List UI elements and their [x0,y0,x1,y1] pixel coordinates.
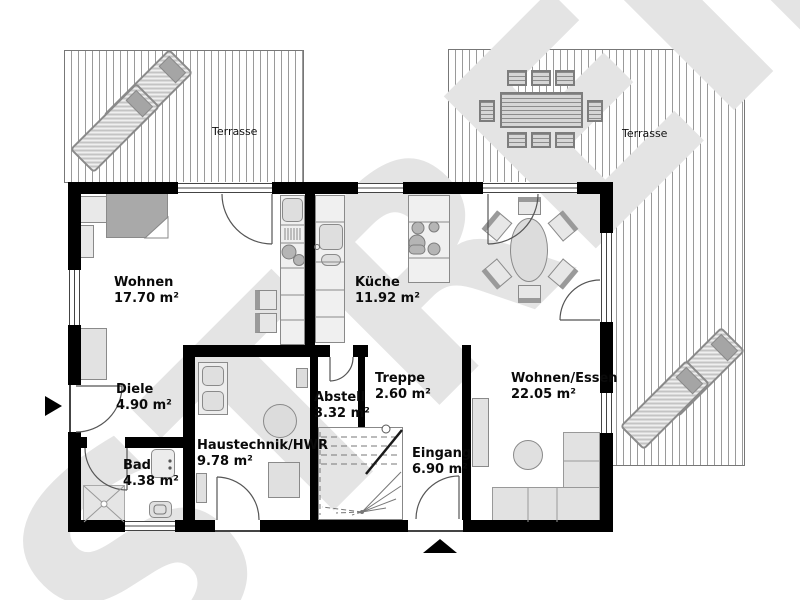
terrace-chair [555,70,575,86]
wall [68,520,125,532]
kitchen-sink [319,224,343,250]
room-area: 17.70 m² [114,291,179,307]
wall [175,520,215,532]
sofa-seat [492,487,600,523]
wall [462,345,471,532]
room-label-kueche: Küche 11.92 m² [355,275,420,307]
window [601,233,612,277]
window [125,521,175,531]
dining-chair [518,197,541,215]
wall [272,182,358,194]
toilet [149,501,172,518]
kitchen-counter [315,195,345,343]
entrance-door-opening [408,520,463,532]
wall [463,520,613,532]
entry-door-opening [69,385,80,432]
terrace-left-label: Terrasse [212,125,257,138]
kitchen-sink-small [321,254,341,266]
room-label-eingang: Eingang 6.90 m² [412,446,471,478]
entry-arrow-icon [45,396,62,416]
room-name: Diele [116,382,172,398]
room-name: Abstell [314,390,370,406]
stool [255,290,277,310]
kitchen-island [408,195,450,283]
room-area: 4.90 m² [116,398,172,414]
kitchen-sink [282,198,303,222]
room-label-bad: Bad 4.38 m² [123,458,179,490]
room-name: Haustechnik/HWR [197,438,328,454]
terrace-chair [531,132,551,148]
room-label-diele: Diele 4.90 m² [116,382,172,414]
room-name: Eingang [412,446,471,462]
terrace-right-label: Terrasse [622,127,667,140]
terrace-door-window [601,277,612,322]
stool [255,313,277,333]
room-name: Küche [355,275,420,291]
terrace-chair [507,132,527,148]
room-area: 6.90 m² [412,462,471,478]
wall [68,182,178,194]
window [358,183,403,193]
coffee-table [513,440,543,470]
window [69,270,80,325]
terrace-chair [531,70,551,86]
wall [600,433,613,532]
entrance-arrow-icon [423,539,457,553]
wall [68,325,81,385]
bedside-shelf [79,225,94,258]
washer-drum [202,391,224,411]
washer-drum [202,366,224,386]
room-label-haustechnik: Haustechnik/HWR 9.78 m² [197,438,328,470]
dining-chair [518,285,541,303]
terrace-chair [555,132,575,148]
wall [125,437,183,448]
wall [68,182,81,270]
hwr-cabinet [296,368,308,388]
wall [403,182,483,194]
room-label-treppe: Treppe 2.60 m² [375,371,431,403]
room-name: Wohnen [114,275,179,291]
terrace-chair [587,100,603,122]
terrace-chair [479,100,495,122]
sofa-corner [563,432,600,488]
terrace-door-window [483,183,577,193]
room-area: 9.78 m² [197,454,328,470]
room-label-wohnen-essen: Wohnen/Essen 22.05 m² [511,371,618,403]
room-label-abstell: Abstell 3.32 m² [314,390,370,422]
terrace-door-window [178,183,272,193]
water-heater [263,404,297,438]
room-label-wohnen: Wohnen 17.70 m² [114,275,179,307]
room-area: 4.38 m² [123,474,179,490]
floor-plan: STREIF [0,0,800,600]
wall [81,437,87,448]
hwr-cabinet [196,473,207,503]
wall [183,345,330,357]
room-area: 22.05 m² [511,387,618,403]
wall [260,520,408,532]
bed-pillow [79,196,107,223]
room-name: Wohnen/Essen [511,371,618,387]
service-door-opening [215,520,260,532]
dining-table [510,218,548,282]
room-area: 3.32 m² [314,406,370,422]
wall [353,345,368,357]
sideboard [472,398,489,467]
room-area: 2.60 m² [375,387,431,403]
terrace-chair [507,70,527,86]
wall [183,357,195,520]
bed-blanket [106,193,168,238]
shower [83,485,125,523]
wall [68,432,81,532]
terrace-table [500,92,583,128]
room-name: Treppe [375,371,431,387]
room-area: 11.92 m² [355,291,420,307]
wall [305,194,315,345]
room-name: Bad [123,458,179,474]
wall [600,182,613,233]
